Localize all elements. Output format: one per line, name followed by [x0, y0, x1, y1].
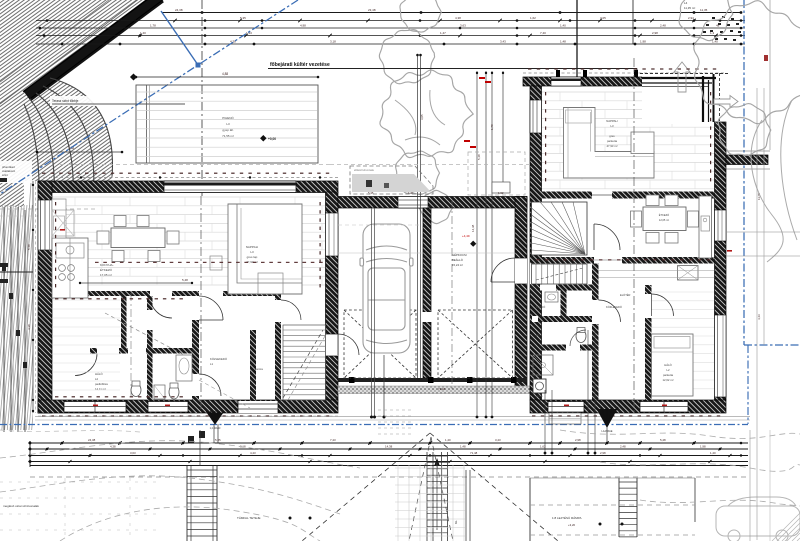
svg-text:14,38: 14,38 [385, 445, 393, 449]
svg-text:3,43: 3,43 [495, 438, 501, 442]
svg-text:PIHENŐ: PIHENŐ [222, 115, 234, 120]
svg-text:BEÁLLÓ: BEÁLLÓ [452, 257, 464, 262]
svg-text:3,43: 3,43 [500, 40, 506, 44]
svg-text:2,48: 2,48 [620, 445, 626, 449]
svg-text:Terasz szint többje: Terasz szint többje [52, 99, 79, 103]
svg-text:24,38: 24,38 [175, 8, 183, 12]
svg-text:L3: L3 [610, 124, 614, 128]
svg-text:1,78: 1,78 [490, 124, 494, 130]
svg-text:NAPPALI: NAPPALI [606, 119, 618, 123]
svg-text:L4: L4 [684, 1, 688, 5]
svg-text:5,48: 5,48 [660, 438, 666, 442]
svg-text:2,98: 2,98 [652, 31, 658, 35]
svg-text:15,24 m²: 15,24 m² [452, 263, 463, 267]
svg-text:4,38: 4,38 [110, 445, 116, 449]
svg-text:parketta: parketta [663, 373, 674, 377]
svg-text:71,48: 71,48 [438, 387, 445, 391]
svg-text:3,18: 3,18 [330, 40, 336, 44]
svg-text:12,62 m²: 12,62 m² [662, 378, 673, 382]
svg-text:5,48: 5,48 [477, 154, 481, 160]
svg-text:1,40: 1,40 [560, 24, 566, 28]
svg-text:4,43: 4,43 [757, 314, 761, 320]
svg-text:1,40: 1,40 [710, 451, 716, 455]
svg-text:14,38: 14,38 [471, 224, 475, 232]
svg-text:1,47: 1,47 [440, 31, 446, 35]
svg-text:1,40: 1,40 [445, 438, 451, 442]
svg-text:3,63: 3,63 [130, 451, 136, 455]
svg-text:2,48: 2,48 [660, 24, 666, 28]
svg-text:11,35: 11,35 [700, 8, 708, 12]
svg-text:1:8 LEJTÉSŰ RÁMPA: 1:8 LEJTÉSŰ RÁMPA [552, 515, 581, 520]
svg-text:1,62: 1,62 [540, 445, 546, 449]
svg-text:tároló: tároló [536, 394, 543, 398]
svg-text:gyep áll.: gyep áll. [222, 128, 233, 132]
svg-text:HÁLÓ: HÁLÓ [664, 362, 672, 367]
svg-text:23,48: 23,48 [368, 8, 376, 12]
svg-text:1,98: 1,98 [700, 445, 706, 449]
svg-text:padlófűtés: padlófűtés [95, 382, 109, 386]
svg-text:3,63: 3,63 [460, 24, 466, 28]
svg-text:szint: szint [2, 173, 8, 177]
svg-text:12,05 m²: 12,05 m² [659, 218, 669, 222]
svg-text:4,88: 4,88 [222, 72, 228, 76]
svg-text:főbejárati kültér vezetése: főbejárati kültér vezetése [270, 62, 330, 68]
svg-text:L3: L3 [226, 122, 230, 126]
svg-text:5,48: 5,48 [182, 278, 188, 282]
svg-text:KONYHA-: KONYHA- [100, 263, 114, 267]
svg-text:+3,20: +3,20 [568, 523, 576, 527]
svg-text:gres: gres [609, 134, 615, 138]
svg-text:3,05: 3,05 [420, 114, 424, 120]
svg-text:L1A96AE: L1A96AE [602, 429, 613, 433]
svg-text:TÁMFAL TETEJE: TÁMFAL TETEJE [237, 516, 261, 520]
svg-text:meglévő utcai szintvonalak: meglévő utcai szintvonalak [3, 504, 39, 508]
svg-text:2,98: 2,98 [575, 438, 581, 442]
svg-text:4,98: 4,98 [300, 24, 306, 28]
svg-text:1,78: 1,78 [150, 24, 156, 28]
svg-text:14,11 m²: 14,11 m² [95, 387, 106, 391]
svg-text:71,48: 71,48 [470, 451, 478, 455]
svg-text:1,48: 1,48 [560, 40, 566, 44]
svg-text:L2: L2 [95, 377, 99, 381]
svg-text:parketta: parketta [607, 139, 618, 143]
svg-text:előtető körvonala: előtető körvonala [354, 168, 374, 172]
svg-text:1,62: 1,62 [498, 191, 504, 195]
svg-text:KL: KL [454, 520, 458, 524]
svg-text:WC: WC [536, 333, 540, 337]
svg-text:gres lap: gres lap [247, 255, 258, 259]
svg-text:11,35 m²: 11,35 m² [684, 6, 695, 10]
svg-text:2,98: 2,98 [600, 451, 606, 455]
svg-text:1,98: 1,98 [640, 40, 646, 44]
svg-text:1,62: 1,62 [530, 16, 536, 20]
svg-text:+0,00: +0,00 [268, 137, 276, 141]
svg-text:5,48: 5,48 [27, 244, 31, 250]
svg-text:4,38: 4,38 [27, 324, 31, 330]
svg-text:L3: L3 [250, 250, 254, 254]
svg-text:ÉTKEZŐ: ÉTKEZŐ [100, 267, 113, 272]
svg-text:1,48: 1,48 [460, 445, 466, 449]
svg-text:1,2 ÁRAD: 1,2 ÁRAD [210, 427, 221, 430]
svg-text:L1: L1 [210, 362, 214, 366]
svg-text:7,40: 7,40 [540, 31, 546, 35]
svg-text:L2: L2 [666, 368, 670, 372]
svg-text:KÖZLEKEDŐ: KÖZLEKEDŐ [210, 356, 228, 361]
svg-text:4,43: 4,43 [250, 451, 256, 455]
svg-text:NAPPALI: NAPPALI [246, 245, 259, 249]
svg-text:kamra: kamra [255, 367, 263, 371]
svg-text:47,93 m²: 47,93 m² [606, 144, 617, 148]
svg-text:24,38: 24,38 [88, 438, 96, 442]
svg-text:5,35: 5,35 [215, 438, 221, 442]
svg-text:71,55 m²: 71,55 m² [222, 134, 234, 138]
svg-text:4,38: 4,38 [455, 16, 461, 20]
svg-text:2,94: 2,94 [688, 16, 694, 20]
svg-text:+4,49: +4,49 [462, 234, 470, 238]
svg-text:7,43: 7,43 [330, 438, 336, 442]
svg-text:17,05 m²: 17,05 m² [100, 273, 112, 277]
